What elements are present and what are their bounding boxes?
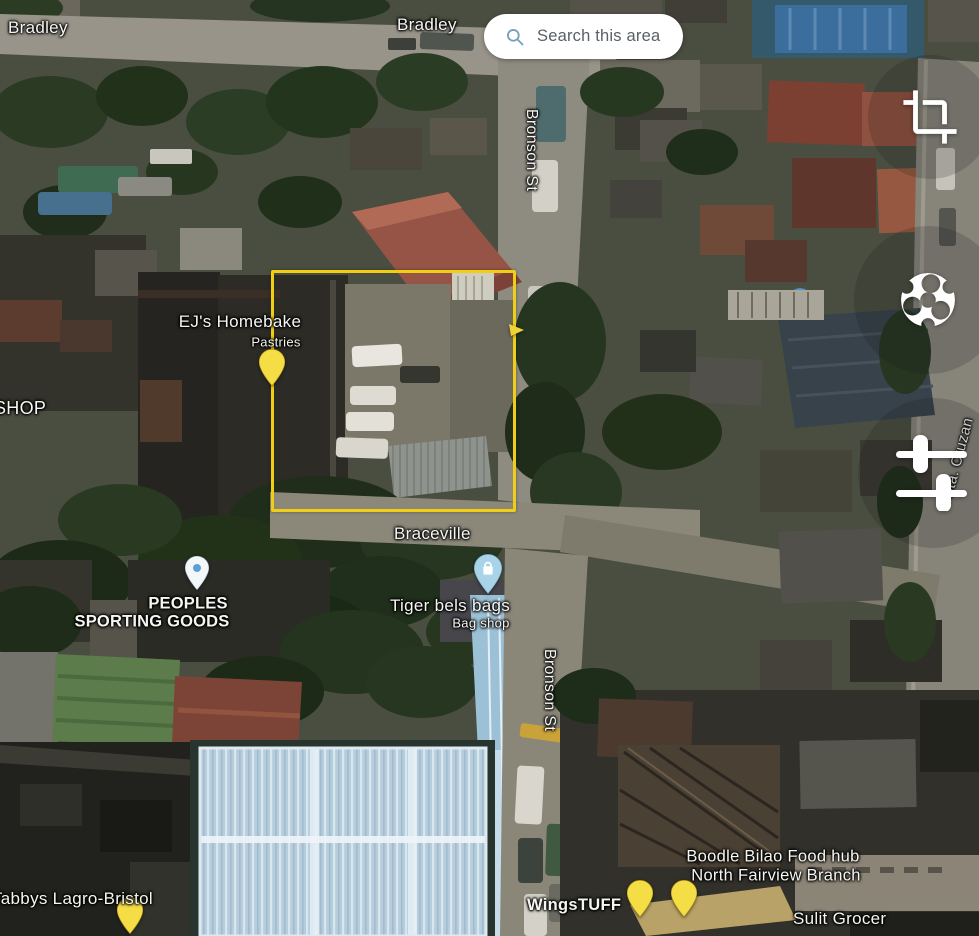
crop-icon [901,88,959,146]
tiger-bels-pin[interactable] [474,554,502,594]
boodle-pin-1[interactable] [627,880,653,917]
boodle-pin-2[interactable] [671,880,697,917]
tabbys-pin[interactable] [117,897,143,934]
peoples-pin[interactable] [185,556,209,590]
ejs-homebake-pin[interactable] [259,349,285,386]
selection-edge-marker [506,320,526,340]
search-pill-label: Search this area [537,27,660,46]
search-icon [505,27,525,47]
search-this-area-button[interactable]: Search this area [484,14,683,59]
rotate-icon [900,272,956,328]
map-view: Bradley Bradley Bronson St SHOP EJ's Hom… [0,0,979,936]
adjust-icon [895,435,971,511]
selection-rectangle[interactable] [271,270,516,512]
